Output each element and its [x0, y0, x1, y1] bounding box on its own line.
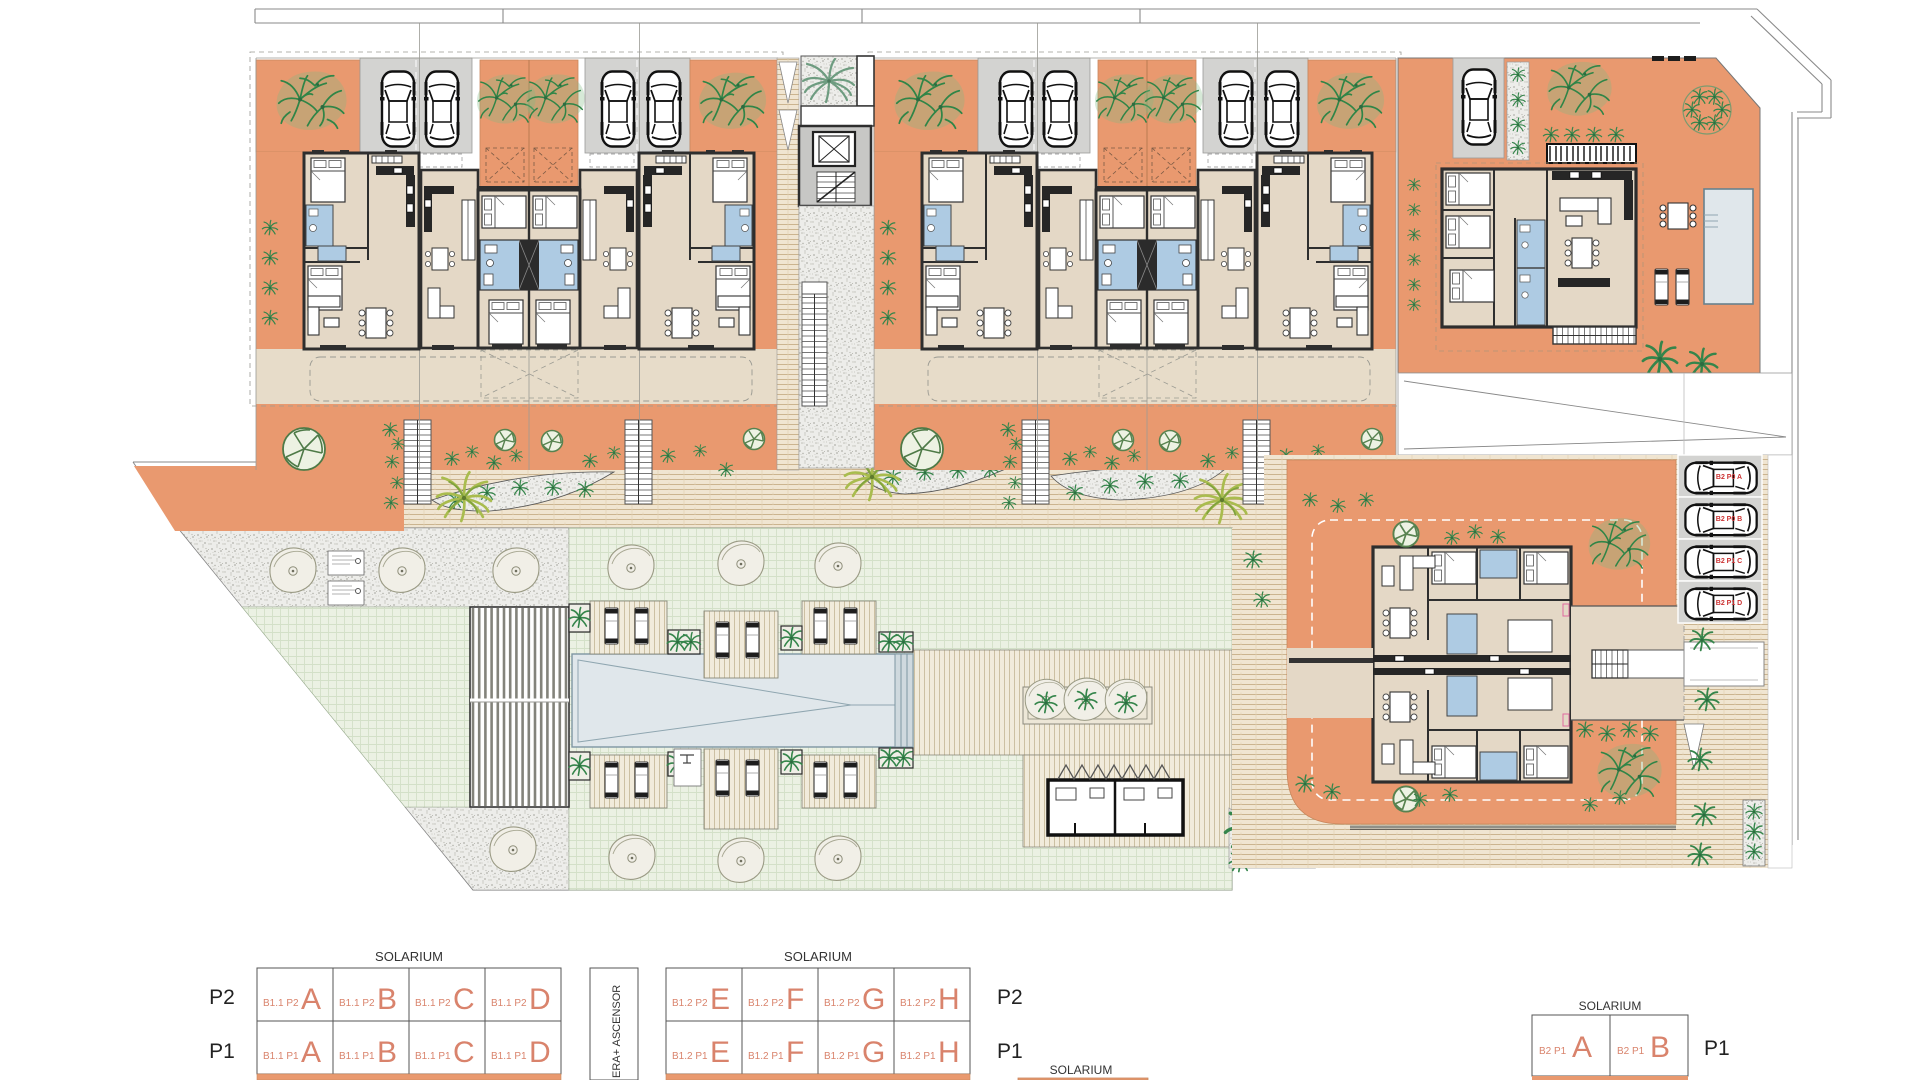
- svg-text:B1.1 P1: B1.1 P1: [339, 1051, 375, 1062]
- svg-text:B1.2 P2: B1.2 P2: [900, 998, 936, 1009]
- svg-text:SOLARIUM: SOLARIUM: [1050, 1063, 1113, 1077]
- svg-text:D: D: [529, 983, 551, 1016]
- svg-text:B1.1 P2: B1.1 P2: [491, 998, 527, 1009]
- svg-text:C: C: [453, 983, 475, 1016]
- svg-text:D: D: [529, 1036, 551, 1069]
- svg-text:B2 P1 D: B2 P1 D: [1716, 600, 1742, 607]
- svg-text:G: G: [862, 983, 885, 1016]
- svg-text:E: E: [710, 1036, 730, 1069]
- svg-text:A: A: [301, 1036, 321, 1069]
- svg-text:F: F: [786, 983, 804, 1016]
- svg-text:H: H: [938, 983, 960, 1016]
- svg-text:SOLARIUM: SOLARIUM: [1579, 999, 1642, 1013]
- svg-text:E: E: [710, 983, 730, 1016]
- svg-text:B1.2 P2: B1.2 P2: [748, 998, 784, 1009]
- svg-text:B1.1 P2: B1.1 P2: [263, 998, 299, 1009]
- svg-text:A: A: [1572, 1031, 1592, 1064]
- svg-text:B2 P1: B2 P1: [1539, 1046, 1567, 1057]
- svg-text:C: C: [453, 1036, 475, 1069]
- svg-text:F: F: [786, 1036, 804, 1069]
- svg-text:B1.1 P2: B1.1 P2: [415, 998, 451, 1009]
- svg-text:B1.1 P1: B1.1 P1: [491, 1051, 527, 1062]
- svg-text:P2: P2: [209, 986, 235, 1009]
- svg-text:H: H: [938, 1036, 960, 1069]
- svg-text:B2 P0 A: B2 P0 A: [1716, 474, 1742, 481]
- svg-text:B2 P0 B: B2 P0 B: [1716, 516, 1742, 523]
- svg-text:P1: P1: [997, 1040, 1023, 1063]
- svg-text:B1.2 P1: B1.2 P1: [900, 1051, 936, 1062]
- svg-text:B: B: [377, 983, 397, 1016]
- svg-text:B1.1 P1: B1.1 P1: [415, 1051, 451, 1062]
- svg-text:ERA+ ASCENSOR: ERA+ ASCENSOR: [611, 985, 623, 1078]
- svg-text:P1: P1: [209, 1040, 235, 1063]
- svg-text:B1.1 P2: B1.1 P2: [339, 998, 375, 1009]
- svg-text:P1: P1: [1704, 1037, 1730, 1060]
- svg-text:SOLARIUM: SOLARIUM: [375, 949, 443, 964]
- svg-text:B1.2 P1: B1.2 P1: [748, 1051, 784, 1062]
- svg-text:P2: P2: [997, 986, 1023, 1009]
- svg-text:B2 P1 C: B2 P1 C: [1716, 558, 1742, 565]
- svg-text:B: B: [1650, 1031, 1670, 1064]
- svg-text:B1.2 P1: B1.2 P1: [672, 1051, 708, 1062]
- svg-text:B1.2 P1: B1.2 P1: [824, 1051, 860, 1062]
- svg-text:B1.2 P2: B1.2 P2: [672, 998, 708, 1009]
- svg-text:A: A: [301, 983, 321, 1016]
- svg-text:G: G: [862, 1036, 885, 1069]
- svg-text:SOLARIUM: SOLARIUM: [784, 949, 852, 964]
- svg-text:B2 P1: B2 P1: [1617, 1046, 1645, 1057]
- svg-text:B1.2 P2: B1.2 P2: [824, 998, 860, 1009]
- svg-text:B1.1 P1: B1.1 P1: [263, 1051, 299, 1062]
- svg-text:B: B: [377, 1036, 397, 1069]
